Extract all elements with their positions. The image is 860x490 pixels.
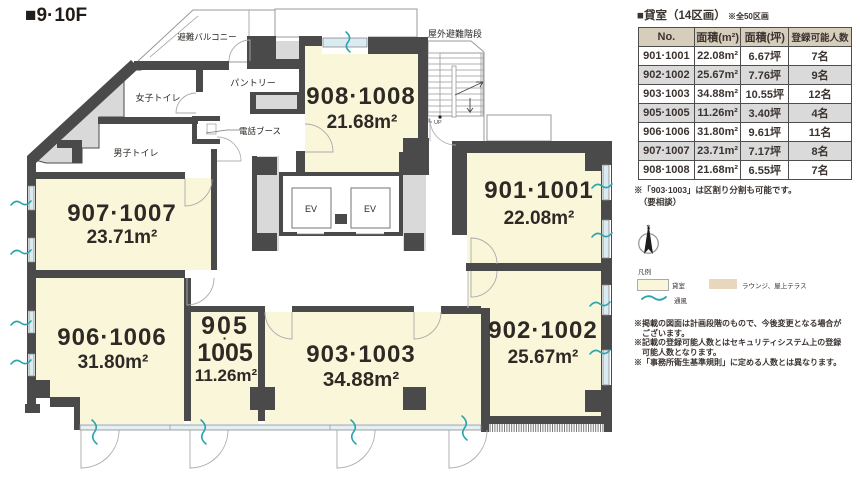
svg-text:電話ブース: 電話ブース <box>239 126 281 136</box>
svg-text:避難バルコニー: 避難バルコニー <box>177 32 236 42</box>
svg-text:22.08m²: 22.08m² <box>504 208 575 229</box>
svg-text:EV: EV <box>364 204 376 214</box>
svg-text:21.68m²: 21.68m² <box>327 112 398 133</box>
svg-text:女子トイレ: 女子トイレ <box>135 92 180 103</box>
svg-text:907·1007: 907·1007 <box>67 200 176 227</box>
svg-text:11.26m²: 11.26m² <box>195 366 258 385</box>
svg-text:902·1002: 902·1002 <box>488 317 597 344</box>
svg-text:屋外避難階段: 屋外避難階段 <box>428 28 482 39</box>
svg-text:34.88m²: 34.88m² <box>323 368 400 391</box>
svg-text:EV: EV <box>305 204 317 214</box>
svg-text:25.67m²: 25.67m² <box>508 347 579 368</box>
svg-text:男子トイレ: 男子トイレ <box>113 148 158 158</box>
svg-text:903·1003: 903·1003 <box>306 341 415 368</box>
svg-text:908·1008: 908·1008 <box>306 83 415 110</box>
svg-text:パントリー: パントリー <box>230 78 275 88</box>
svg-text:1005: 1005 <box>197 339 253 367</box>
svg-text:906·1006: 906·1006 <box>57 324 166 351</box>
svg-text:UP: UP <box>434 120 442 126</box>
svg-text:31.80m²: 31.80m² <box>78 352 149 373</box>
svg-text:901·1001: 901·1001 <box>484 177 593 204</box>
svg-text:23.71m²: 23.71m² <box>87 227 158 248</box>
